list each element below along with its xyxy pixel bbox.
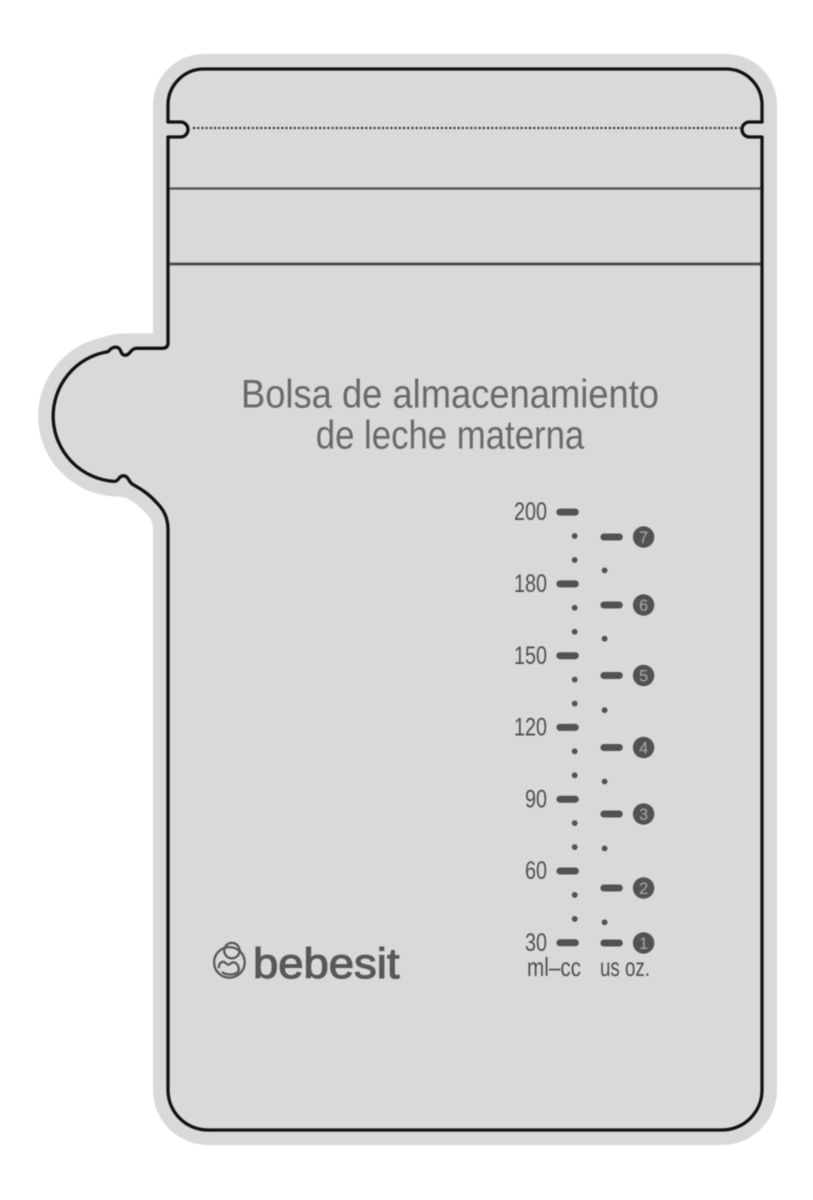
svg-text:180: 180	[514, 570, 547, 598]
svg-text:120: 120	[514, 714, 547, 742]
svg-text:7: 7	[639, 528, 648, 547]
svg-text:60: 60	[525, 857, 547, 885]
svg-text:6: 6	[639, 596, 648, 615]
svg-text:bebesit: bebesit	[253, 940, 400, 988]
svg-text:de leche materna: de leche materna	[316, 414, 585, 458]
svg-text:1: 1	[639, 934, 648, 953]
svg-text:us oz.: us oz.	[600, 952, 650, 982]
svg-text:90: 90	[525, 785, 547, 813]
svg-text:5: 5	[639, 667, 648, 686]
svg-text:4: 4	[639, 739, 648, 758]
svg-text:3: 3	[639, 805, 648, 824]
svg-text:ml–cc: ml–cc	[527, 952, 581, 982]
svg-text:Bolsa de almacenamiento: Bolsa de almacenamiento	[241, 372, 659, 416]
svg-text:150: 150	[514, 642, 547, 670]
svg-text:200: 200	[514, 498, 547, 526]
svg-text:2: 2	[639, 879, 648, 898]
